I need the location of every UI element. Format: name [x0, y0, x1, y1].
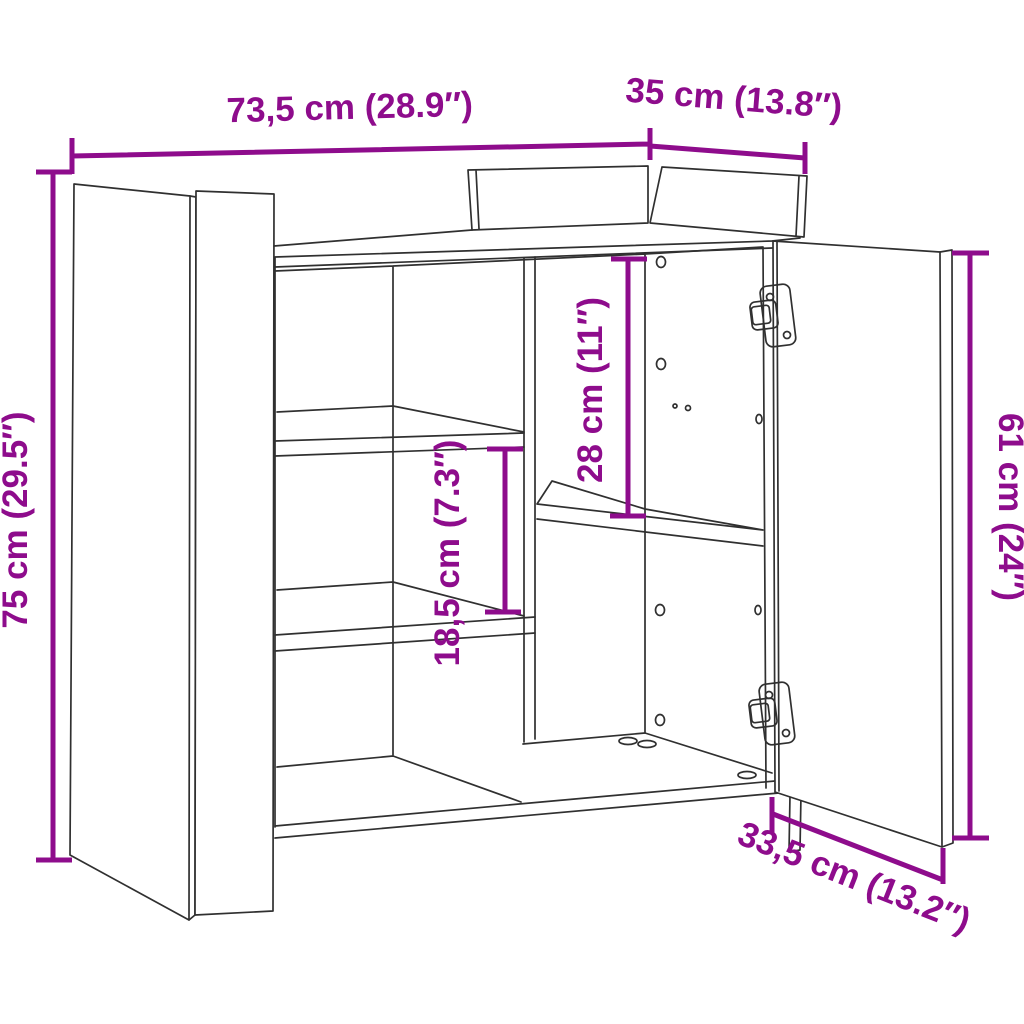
top-surface	[274, 230, 800, 267]
floor-screw-hole	[738, 772, 756, 779]
center-divider	[524, 257, 535, 742]
dimension-label-upper-compartment: 28 cm (11″)	[571, 297, 610, 483]
dimension-label-height: 75 cm (29.5″)	[0, 411, 35, 628]
dimension-label-door-height: 61 cm (24″)	[991, 413, 1024, 601]
screw-dot	[673, 404, 677, 408]
dimension-depth: 35 cm (13.8″)	[624, 71, 844, 174]
pin-hole	[755, 606, 761, 615]
dimension-upper-compartment-line	[610, 259, 647, 516]
pin-hole	[656, 605, 665, 616]
right-door-open	[773, 241, 953, 847]
left-door-open	[70, 184, 190, 920]
shelf-upper-left	[275, 406, 524, 456]
hinge-top-cup	[751, 305, 771, 325]
screw-dot	[686, 406, 691, 411]
dimension-width: 73,5 cm (28.9″)	[72, 85, 650, 174]
dimension-label-width: 73,5 cm (28.9″)	[226, 85, 473, 130]
hinge-bottom-cup	[750, 703, 770, 723]
pin-hole	[656, 715, 665, 726]
dimension-door-height-line	[952, 253, 989, 838]
pin-hole	[756, 415, 762, 424]
cabinet-drawing	[70, 166, 953, 920]
top-rim-right-panel	[650, 167, 807, 237]
dimension-upper-compartment: 28 cm (11″)	[571, 259, 647, 516]
floor-screw-hole	[638, 741, 656, 748]
floor-screw-hole	[619, 738, 637, 745]
shelf-lower-left	[275, 582, 535, 651]
dimension-label-shelf-spacing: 18,5 cm (7.3″)	[428, 440, 467, 667]
pin-hole	[657, 257, 666, 268]
bottom-floor	[275, 733, 801, 852]
top-rim-back-panel	[468, 166, 648, 230]
pin-hole	[657, 359, 666, 370]
cabinet-dimension-diagram: 73,5 cm (28.9″) 35 cm (13.8″) 75 cm (29.…	[0, 0, 1024, 1024]
dimension-height-line	[36, 172, 72, 860]
dimension-height: 75 cm (29.5″)	[0, 172, 72, 860]
left-side-panel	[195, 191, 274, 915]
dimension-shelf-spacing-line	[485, 449, 523, 612]
shelf-right	[537, 481, 763, 546]
dimension-shelf-spacing: 18,5 cm (7.3″)	[428, 440, 523, 667]
dimension-label-depth: 35 cm (13.8″)	[624, 71, 844, 127]
dimension-door-height: 61 cm (24″)	[952, 253, 1024, 838]
